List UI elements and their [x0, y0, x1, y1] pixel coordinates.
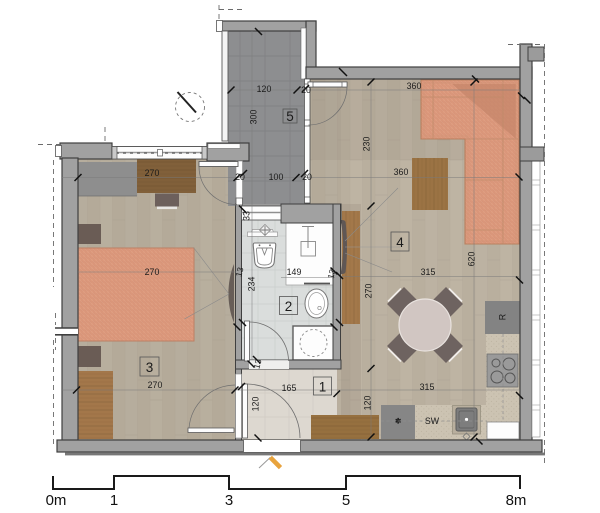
svg-text:4: 4: [396, 235, 404, 250]
svg-text:120: 120: [363, 396, 373, 411]
svg-text:270: 270: [148, 380, 163, 390]
svg-text:1: 1: [110, 492, 118, 509]
svg-text:120: 120: [257, 84, 272, 94]
svg-text:3: 3: [146, 360, 154, 375]
svg-text:165: 165: [282, 383, 297, 393]
svg-text:300: 300: [249, 110, 259, 125]
svg-text:120: 120: [251, 397, 261, 412]
svg-text:315: 315: [420, 382, 435, 392]
svg-text:100: 100: [269, 172, 284, 182]
svg-text:3: 3: [225, 492, 233, 509]
svg-text:5: 5: [342, 492, 350, 509]
svg-text:0m: 0m: [46, 492, 67, 509]
svg-text:8m: 8m: [506, 492, 527, 509]
svg-text:33: 33: [242, 211, 252, 221]
svg-text:5: 5: [286, 109, 294, 124]
svg-text:620: 620: [467, 252, 477, 267]
svg-text:R: R: [498, 314, 508, 320]
svg-text:1: 1: [319, 380, 327, 395]
svg-text:2: 2: [285, 299, 293, 314]
svg-text:360: 360: [394, 167, 409, 177]
svg-text:360: 360: [407, 81, 422, 91]
svg-text:20: 20: [302, 172, 312, 182]
svg-text:270: 270: [145, 168, 160, 178]
svg-text:SW: SW: [425, 416, 440, 426]
svg-text:270: 270: [145, 267, 160, 277]
svg-text:20: 20: [301, 85, 311, 95]
svg-text:315: 315: [421, 267, 436, 277]
svg-text:149: 149: [287, 267, 302, 277]
svg-text:234: 234: [247, 277, 257, 292]
svg-text:230: 230: [362, 137, 372, 152]
svg-text:270: 270: [364, 284, 374, 299]
svg-text:20: 20: [235, 172, 245, 182]
